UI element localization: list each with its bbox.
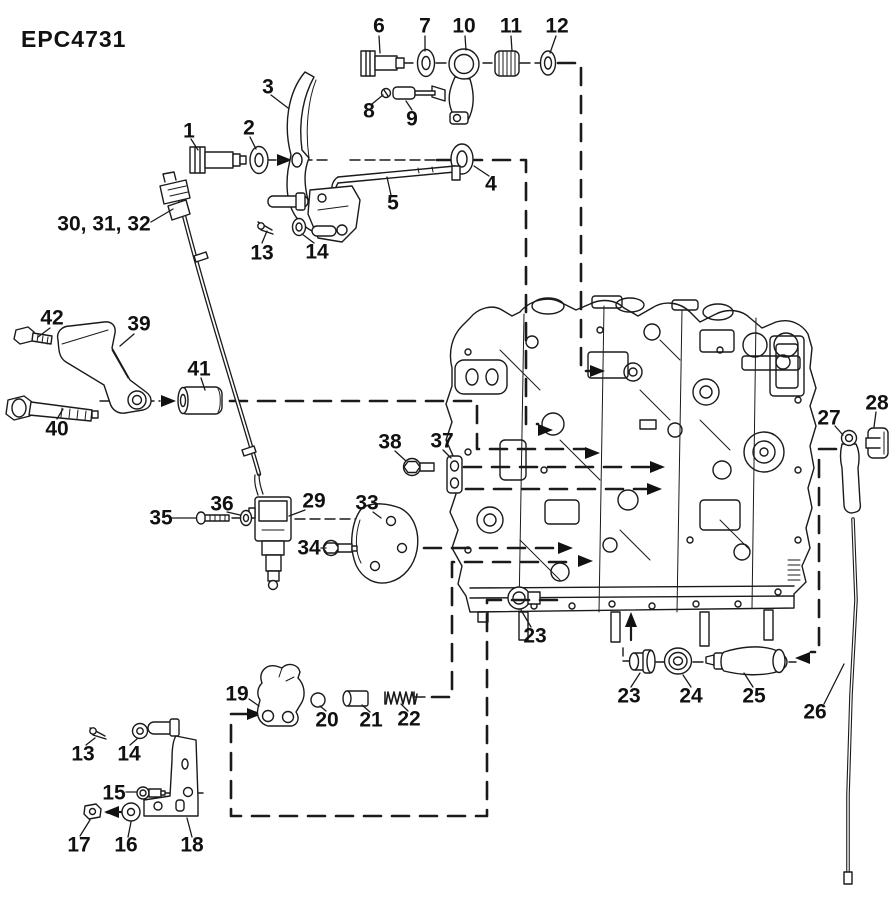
part-label-42: 42 — [40, 308, 63, 329]
part-label-14-bottom: 14 — [117, 744, 140, 765]
part-clevis-27 — [841, 431, 861, 514]
part-label-26: 26 — [803, 702, 826, 723]
part-label-41: 41 — [187, 359, 210, 380]
part-label-36: 36 — [210, 494, 233, 515]
part-nut-11 — [495, 51, 519, 76]
part-label-9: 9 — [406, 109, 418, 130]
part-washer-7 — [418, 50, 435, 77]
part-washer-14-top — [293, 219, 306, 236]
part-ball-20 — [311, 693, 325, 707]
part-rod-26 — [844, 519, 856, 884]
part-label-14-top: 14 — [305, 242, 328, 263]
part-label-35: 35 — [149, 508, 172, 529]
part-label-34: 34 — [297, 538, 320, 559]
part-label-4: 4 — [485, 174, 497, 195]
part-screw-8 — [382, 89, 391, 98]
part-washer-36 — [241, 511, 252, 526]
part-label-21: 21 — [359, 710, 382, 731]
diagram-code: EPC4731 — [21, 26, 126, 53]
part-cotter-pin-13-bottom — [90, 728, 106, 739]
part-label-5: 5 — [387, 193, 399, 214]
part-spacer-41 — [178, 387, 222, 414]
part-label-28: 28 — [865, 393, 888, 414]
part-label-25: 25 — [742, 686, 765, 707]
part-label-27: 27 — [817, 408, 840, 429]
part-washer-14-bottom — [133, 724, 148, 739]
part-label-20: 20 — [315, 710, 338, 731]
part-label-23-lower: 23 — [617, 686, 640, 707]
part-bolt-6 — [361, 51, 404, 76]
part-lever-bracket-18 — [144, 719, 198, 816]
part-label-17: 17 — [67, 835, 90, 856]
part-label-23-engine: 23 — [523, 626, 546, 647]
engine-block — [446, 296, 816, 646]
part-label-22: 22 — [397, 709, 420, 730]
part-washer-16 — [122, 803, 140, 821]
part-label-37: 37 — [430, 431, 453, 452]
part-label-33: 33 — [355, 493, 378, 514]
part-spring-22 — [385, 692, 417, 704]
part-label-1: 1 — [183, 121, 195, 142]
part-bracket-39 — [58, 322, 151, 413]
part-label-13-bottom: 13 — [71, 744, 94, 765]
part-label-16: 16 — [114, 835, 137, 856]
part-label-7: 7 — [419, 16, 431, 37]
part-cam-19 — [257, 665, 304, 726]
part-label-15: 15 — [102, 783, 125, 804]
part-plate-37 — [447, 456, 462, 493]
part-cable-30-31-32 — [160, 172, 263, 495]
part-handle-25 — [706, 647, 787, 675]
part-bushing-21 — [343, 691, 368, 706]
part-label-11: 11 — [500, 16, 522, 37]
part-seal-24 — [665, 648, 692, 674]
part-label-8: 8 — [363, 101, 375, 122]
part-bushing-23 — [630, 650, 656, 673]
part-label-10: 10 — [452, 16, 475, 37]
part-washer-12 — [541, 51, 556, 75]
part-label-40: 40 — [45, 419, 68, 440]
part-label-29: 29 — [302, 491, 325, 512]
part-label-30-31-32: 30, 31, 32 — [57, 214, 150, 235]
part-pin-9 — [393, 87, 435, 99]
part-cotter-pin-13-top — [258, 222, 273, 234]
part-label-18: 18 — [180, 835, 203, 856]
part-bolt-15 — [137, 787, 165, 799]
part-bolt-38 — [404, 459, 435, 476]
part-label-3: 3 — [262, 77, 274, 98]
part-label-6: 6 — [373, 16, 385, 37]
part-nut-17 — [84, 804, 101, 819]
part-label-38: 38 — [378, 432, 401, 453]
part-plate-33 — [352, 504, 418, 583]
part-label-19: 19 — [225, 684, 248, 705]
part-washer-2 — [250, 147, 268, 174]
part-label-2: 2 — [243, 118, 255, 139]
part-label-24: 24 — [679, 686, 702, 707]
part-label-12: 12 — [545, 16, 568, 37]
parts-diagram-page: EPC4731 123456789101112131430, 31, 32423… — [0, 0, 896, 898]
part-switch-29 — [249, 497, 291, 590]
part-lever-10 — [432, 49, 479, 124]
part-label-13-top: 13 — [250, 243, 273, 264]
part-label-39: 39 — [127, 314, 150, 335]
part-clip-28 — [866, 428, 888, 458]
part-pivot-bracket-5 — [268, 186, 360, 242]
part-bolt-42 — [14, 327, 52, 344]
part-bolt-1 — [190, 147, 246, 173]
